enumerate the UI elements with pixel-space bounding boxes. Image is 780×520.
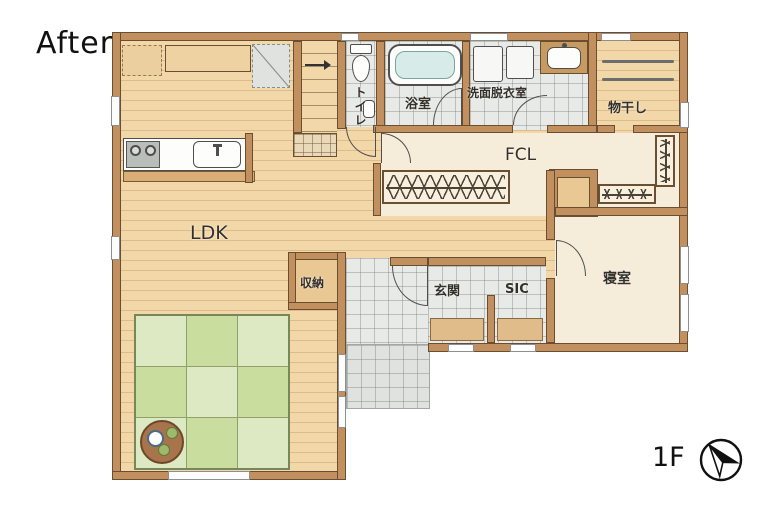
- wall-stairs-left: [293, 41, 302, 133]
- window-icon: [470, 33, 508, 41]
- wall-bedroom-left: [546, 278, 555, 343]
- wall-bedroom-left: [546, 170, 555, 240]
- washing-machine-icon: [506, 46, 534, 79]
- entrance-step-icon: [497, 318, 543, 341]
- stairs-arrow-head: [324, 60, 331, 70]
- window-icon: [680, 294, 689, 332]
- compass-north-icon: [697, 436, 745, 484]
- stove-burner-icon: [130, 145, 141, 156]
- page-title: After: [36, 26, 113, 61]
- hanger-rack-icon: [655, 135, 675, 187]
- window-icon: [338, 396, 346, 428]
- window-icon: [448, 344, 474, 352]
- stove-burner-icon: [145, 145, 156, 156]
- room-label-bath: 浴室: [405, 93, 431, 112]
- drying-pole-icon: [602, 78, 674, 81]
- wall-drying-bottom: [597, 125, 615, 133]
- window-icon: [680, 246, 689, 284]
- teacup-icon: [166, 427, 178, 439]
- stairs-up-arrow: [305, 64, 325, 66]
- window-icon: [168, 471, 250, 480]
- washing-machine-icon: [473, 46, 503, 82]
- room-label-washroom: 洗面脱衣室: [467, 84, 527, 101]
- window-icon: [111, 96, 120, 126]
- room-label-storage: 収納: [300, 274, 324, 291]
- wall-entrance-top: [428, 257, 546, 266]
- room-label-sic: SIC: [505, 282, 529, 297]
- stair-railing: [293, 133, 337, 157]
- bathtub-water: [395, 51, 455, 79]
- window-icon: [111, 236, 120, 260]
- floor-label: 1F: [652, 442, 685, 473]
- entrance-porch-tile: [346, 344, 430, 409]
- window-icon: [341, 33, 359, 41]
- drying-pole-icon: [602, 60, 674, 63]
- faucet-icon: [216, 146, 219, 156]
- window-icon: [680, 102, 689, 128]
- wall-fcl-left: [373, 163, 381, 216]
- entrance-step-icon: [430, 318, 484, 341]
- wall-kitchen-stub: [245, 133, 253, 183]
- faucet-icon: [213, 144, 222, 147]
- wall-entrance-top: [390, 257, 428, 266]
- counter-front-panel: [123, 171, 255, 182]
- hanger-rack-icon: [382, 170, 510, 204]
- room-label-bedroom: 寝室: [603, 268, 631, 288]
- room-label-toilet: トイレ: [352, 86, 369, 128]
- toilet-tank-icon: [350, 44, 372, 54]
- room-label-fcl: FCL: [505, 145, 536, 165]
- window-icon: [338, 354, 346, 392]
- window-icon: [601, 33, 631, 41]
- vanity-sink-icon: [547, 47, 581, 69]
- room-label-drying: 物干し: [608, 97, 647, 116]
- stairs-icon: [302, 41, 337, 133]
- teacup-icon: [158, 444, 170, 456]
- room-label-entrance: 玄関: [434, 280, 460, 299]
- window-icon: [510, 344, 536, 352]
- room-label-ldk: LDK: [190, 222, 228, 244]
- wall-entrance-sic: [487, 295, 495, 343]
- hanger-rack-icon: [598, 184, 656, 204]
- faucet-icon: [562, 43, 567, 48]
- wall-fcl-top: [547, 125, 597, 133]
- wall-bedroom-top: [555, 207, 688, 216]
- kitchen-cabinet-icon: [165, 45, 251, 72]
- wall-stairs-toilet: [337, 41, 346, 129]
- wall-fcl-top: [373, 125, 513, 133]
- refrigerator-space-icon: [252, 44, 290, 88]
- wall-toilet-bath: [376, 41, 385, 127]
- floor-plan-canvas: After 1F: [0, 0, 780, 520]
- closet-block-interior: [557, 177, 590, 209]
- pantry-icon: [122, 45, 162, 76]
- wall-washroom-drying: [588, 32, 597, 133]
